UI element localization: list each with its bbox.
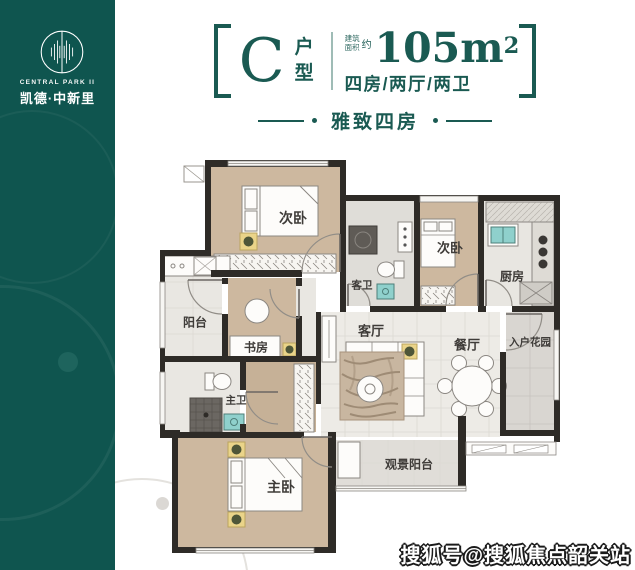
room-label-bedroom-3: 次卧 bbox=[437, 238, 463, 257]
floorplan-drawing bbox=[0, 0, 635, 570]
room-label-living-room: 客厅 bbox=[358, 321, 384, 340]
room-label-view-balcony: 观景阳台 bbox=[385, 456, 433, 473]
room-label-balcony: 阳台 bbox=[183, 314, 207, 331]
room-label-entry-garden: 入户花园 bbox=[509, 335, 551, 350]
room-label-master-bedroom: 主卧 bbox=[267, 477, 295, 497]
room-label-guest-bath: 客卫 bbox=[352, 278, 373, 293]
floorplan-card: CENTRAL PARK II 凯德·中新里 C 户 型 建筑 面积 约 105… bbox=[0, 0, 635, 570]
room-label-bedroom-2: 次卧 bbox=[279, 208, 307, 228]
floorplan-area: 次卧 次卧 厨房 客卫 阳台 书房 客厅 餐厅 入户花园 主卫 主卧 观景阳台 bbox=[0, 0, 635, 570]
watermark: 搜狐号@搜狐焦点韶关站 bbox=[400, 539, 631, 568]
room-label-study: 书房 bbox=[244, 339, 268, 356]
room-label-kitchen: 厨房 bbox=[500, 268, 524, 285]
room-label-dining-room: 餐厅 bbox=[454, 335, 480, 354]
room-label-master-bath: 主卫 bbox=[226, 393, 247, 408]
